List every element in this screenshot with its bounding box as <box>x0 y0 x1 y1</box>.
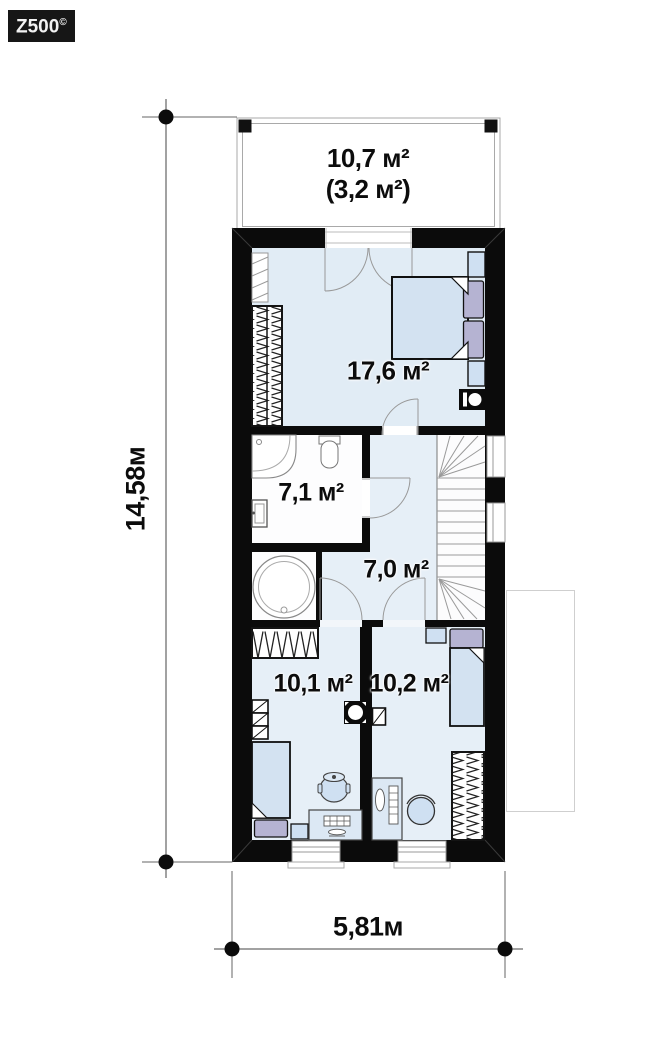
bedroom-area-label: 17,6 м² <box>347 356 429 387</box>
brand-watermark: Z500© <box>8 10 75 42</box>
balcony-area-note: (3,2 м²) <box>326 174 411 205</box>
brand-name: Z500 <box>16 16 59 37</box>
balcony-area-value: 10,7 м² <box>326 143 411 174</box>
toilet <box>319 436 340 468</box>
vent-icon <box>373 708 386 725</box>
stair-window-lower <box>487 503 505 542</box>
nightstand <box>468 252 485 277</box>
desk <box>372 778 402 840</box>
height-dimension-label: 14,58м <box>121 447 152 532</box>
bedroom-door-opening <box>382 426 418 435</box>
nightstand <box>291 824 308 839</box>
room-right-door-opening <box>383 620 425 627</box>
pillow <box>255 820 288 837</box>
balcony-door-opening <box>325 228 412 248</box>
pillow <box>450 629 483 648</box>
wardrobe <box>252 306 282 426</box>
stair-window-upper <box>487 436 505 477</box>
bathroom-door-opening <box>362 478 370 518</box>
sink <box>252 500 267 527</box>
chimney-icon <box>344 701 367 724</box>
chimney-icon <box>459 389 486 410</box>
width-dimension-label: 5,81м <box>333 912 403 943</box>
round-bathtub <box>253 556 315 618</box>
adjacent-roof-outline <box>507 591 575 812</box>
window-room-right <box>394 841 450 868</box>
balcony-post-left <box>239 120 252 133</box>
balcony-area-label: 10,7 м² (3,2 м²) <box>326 143 411 205</box>
wardrobe <box>452 752 484 840</box>
room-left-door-opening <box>320 620 362 627</box>
bathroom-area-label: 7,1 м² <box>278 479 344 508</box>
dimension-line-vertical <box>142 99 237 878</box>
desk <box>309 810 362 840</box>
copyright-mark: © <box>59 17 66 28</box>
hall-area-label: 7,0 м² <box>363 556 429 585</box>
floor-plan-canvas: Z500© 10,7 м² (3,2 м²) 17,6 м² 7,1 м² 7,… <box>0 0 655 1064</box>
window-room-left <box>288 841 344 868</box>
vent-stack-icon <box>252 700 268 739</box>
room-left-area-label: 10,1 м² <box>274 670 353 699</box>
room-right-area-label: 10,2 м² <box>370 670 449 699</box>
radiator <box>252 253 268 302</box>
nightstand <box>468 361 485 386</box>
wardrobe <box>252 628 318 658</box>
balcony-post-right <box>485 120 498 133</box>
nightstand <box>426 628 446 643</box>
